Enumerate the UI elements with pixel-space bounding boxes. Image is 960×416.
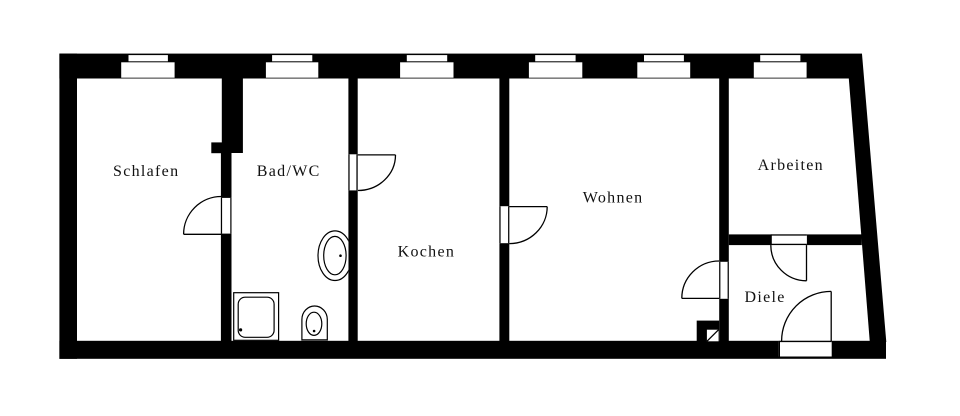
svg-text:Kochen: Kochen — [398, 244, 456, 261]
svg-text:Arbeiten: Arbeiten — [758, 157, 824, 174]
svg-text:Diele: Diele — [745, 289, 786, 306]
svg-text:Bad/WC: Bad/WC — [257, 163, 321, 180]
svg-text:Schlafen: Schlafen — [113, 163, 179, 180]
svg-text:Wohnen: Wohnen — [583, 189, 644, 206]
